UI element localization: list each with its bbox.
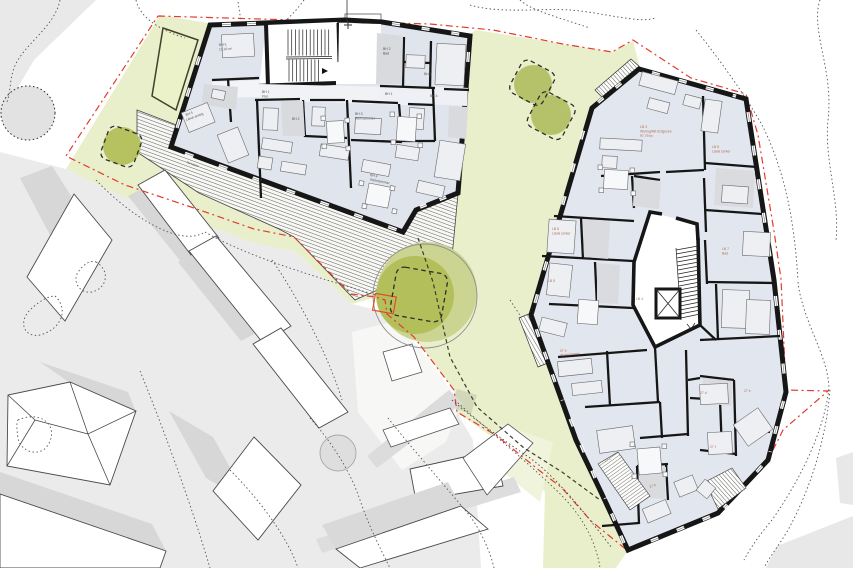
svg-text:LB 5: LB 5: [548, 279, 555, 283]
svg-text:Bad: Bad: [383, 52, 389, 56]
svg-text:Läval zenter: Läval zenter: [712, 150, 731, 154]
svg-text:Flur: Flur: [262, 95, 269, 99]
svg-text:27 e: 27 e: [744, 389, 751, 393]
svg-text:BH 1: BH 1: [385, 92, 393, 96]
svg-text:BH 4: BH 4: [430, 94, 438, 98]
svg-text:BH 1: BH 1: [262, 90, 270, 94]
svg-text:LB 8: LB 8: [712, 145, 719, 149]
svg-text:12.32 m²: 12.32 m²: [219, 47, 233, 52]
svg-text:BH 2: BH 2: [424, 72, 432, 76]
svg-text:Wohnzimmer: Wohnzimmer: [355, 117, 376, 121]
svg-text:LB 3: LB 3: [640, 125, 647, 129]
svg-text:BH 2: BH 2: [292, 117, 300, 121]
svg-text:Wohng/Mit Erdgezee: Wohng/Mit Erdgezee: [640, 130, 672, 134]
svg-text:LB 4: LB 4: [636, 297, 643, 301]
svg-text:LB 7: LB 7: [722, 247, 729, 251]
svg-text:27 d: 27 d: [700, 391, 707, 395]
svg-text:97.79 m²: 97.79 m²: [640, 134, 654, 138]
svg-text:Läval zenter: Läval zenter: [552, 232, 571, 236]
svg-text:27 f: 27 f: [710, 445, 716, 449]
svg-text:LB 6: LB 6: [552, 227, 559, 231]
svg-text:Bad: Bad: [722, 252, 728, 256]
svg-text:BH 3: BH 3: [355, 112, 363, 116]
svg-text:BH 2: BH 2: [383, 47, 391, 51]
